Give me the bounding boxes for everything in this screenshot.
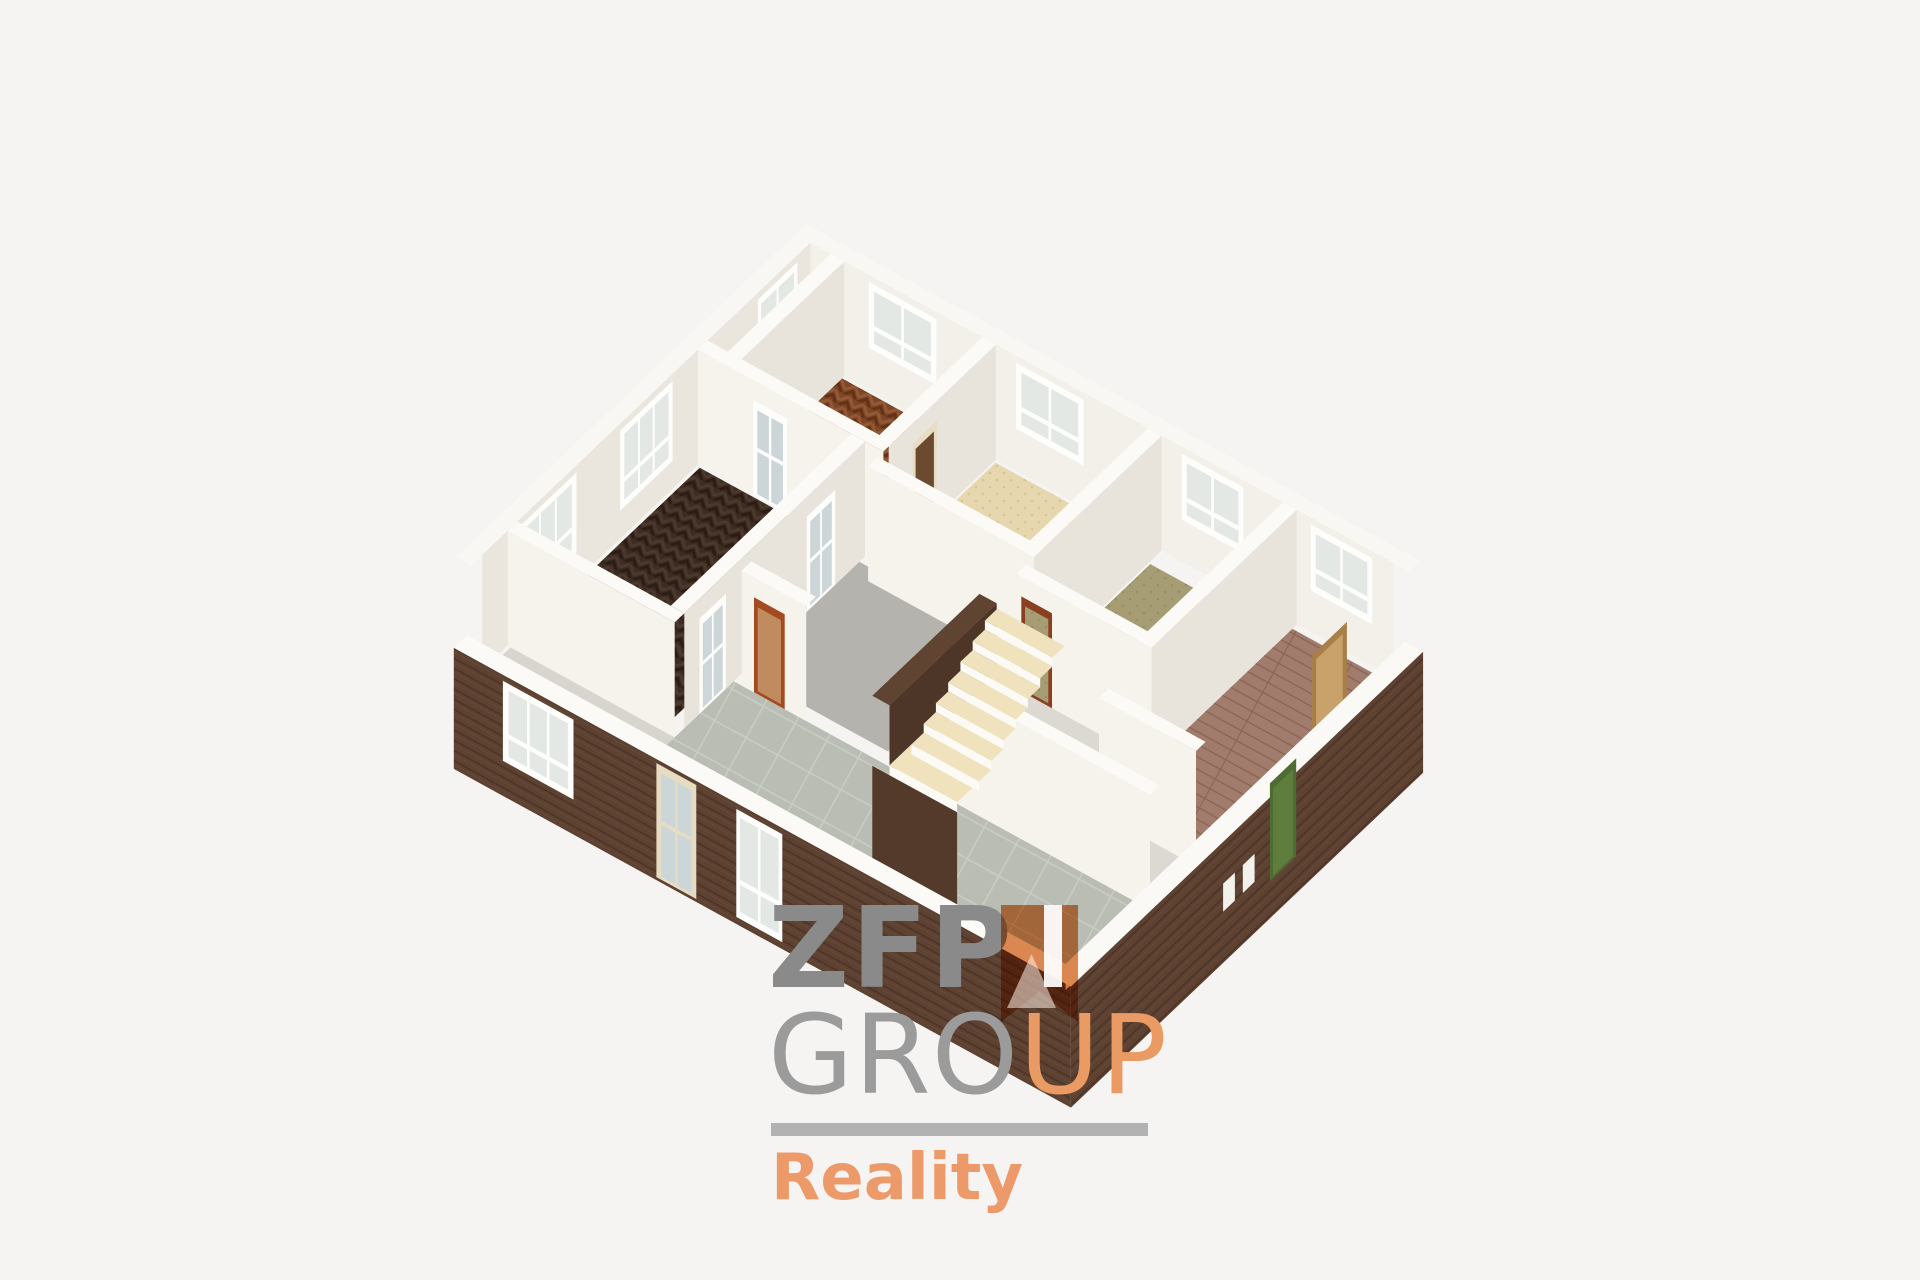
door-tile-hall (754, 597, 785, 709)
front-door (656, 763, 696, 899)
logo-group-gray: GRO (768, 991, 1019, 1119)
door-glazed-parquet-vbar (769, 417, 771, 502)
window-ne-olive-mullion (1211, 477, 1214, 531)
logo-arrow-stem-icon (1044, 905, 1062, 987)
logo-group-text: GROUP (768, 1000, 1168, 1110)
logo-divider-bar (771, 1123, 1148, 1136)
logo-reality-text: Reality (771, 1142, 1023, 1216)
window-sw-tile-mullion (758, 828, 761, 924)
window-ne-beige-mullion (1049, 388, 1052, 442)
window-ne-parquet-mullion (901, 307, 904, 361)
window-ne-wood-mullion (1340, 548, 1343, 602)
window-sw-espresso-mullion (547, 712, 550, 780)
door-tile-hall-panel (758, 607, 781, 704)
window-nw-espresso-1-mullion (653, 405, 655, 473)
door-glazed-parquet (753, 400, 787, 513)
window-sw-espresso-mullion (527, 701, 530, 768)
window-nw-espresso-1-mullion (638, 419, 640, 487)
floorplan-screenshot: ZFP GROUP Reality (0, 0, 1920, 1280)
logo-zfp-text: ZFP (768, 893, 1014, 1005)
logo-group-orange: UP (1019, 991, 1168, 1119)
front-door-vbar (675, 781, 677, 885)
